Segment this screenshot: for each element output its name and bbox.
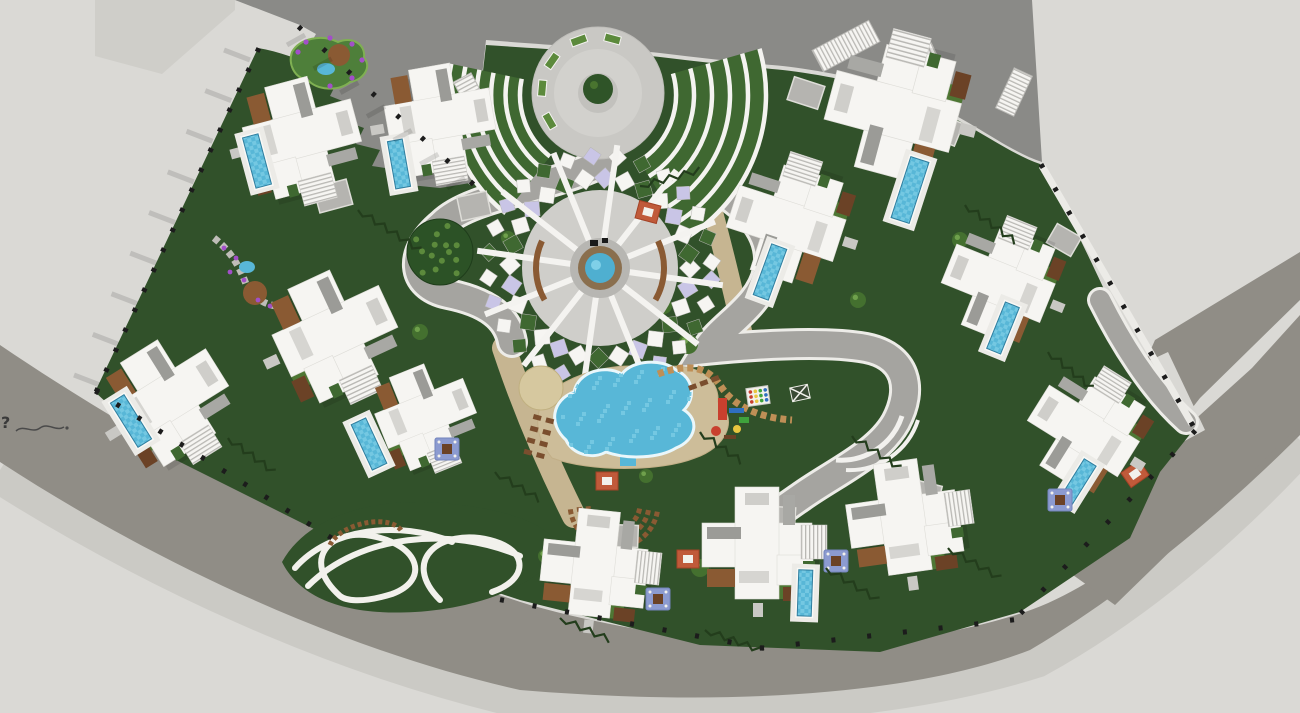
planter — [951, 527, 964, 539]
flower-bed — [349, 75, 354, 80]
cabana — [596, 472, 618, 490]
plaza-tree — [583, 74, 613, 104]
shade-structure — [590, 240, 598, 246]
play-equipment — [729, 408, 744, 413]
plaza-planter — [538, 80, 547, 97]
flower-bed — [359, 57, 364, 62]
fence-post — [1010, 617, 1015, 622]
flower-bed — [349, 41, 354, 46]
flower-bed — [228, 270, 233, 275]
play-equipment — [733, 425, 741, 433]
paving-tile — [537, 164, 552, 179]
paving-tile — [497, 318, 512, 333]
shrub — [850, 292, 866, 308]
fence-post — [867, 633, 872, 638]
mulch-bed — [328, 44, 350, 66]
paving-tile — [512, 339, 526, 353]
planter — [421, 164, 432, 177]
paving-tile — [647, 331, 664, 348]
villa-pergola — [801, 525, 827, 559]
master-plan-render — [0, 0, 1300, 713]
game-mat — [790, 384, 811, 401]
swimming-pool — [790, 564, 820, 623]
round-patio — [519, 366, 563, 410]
paving-tile — [539, 187, 556, 204]
pool-water — [797, 570, 813, 616]
roof-panel — [707, 527, 741, 539]
play-equipment — [718, 398, 727, 420]
mulch-bed — [243, 281, 267, 305]
play-equipment — [711, 426, 721, 436]
large-tree — [407, 219, 473, 285]
villa-pergola — [944, 489, 974, 526]
villa-wing — [924, 521, 964, 556]
cabana — [677, 550, 699, 568]
flower-bed — [295, 49, 300, 54]
shrub — [412, 324, 428, 340]
stray-question-mark-annotation: ? — [1, 413, 10, 432]
flower-bed — [242, 278, 247, 283]
shade-structure — [602, 238, 608, 243]
paving-tile — [676, 186, 690, 200]
flower-bed — [303, 39, 308, 44]
game-mat — [746, 386, 770, 407]
garden-pond — [239, 261, 255, 273]
flower-bed — [256, 298, 261, 303]
roof-panel — [745, 493, 769, 505]
play-equipment — [739, 417, 749, 423]
stray-dot — [65, 426, 68, 429]
fence-post — [903, 629, 908, 634]
roof-panel — [783, 495, 795, 525]
villa-pergola — [634, 550, 662, 585]
play-equipment — [724, 435, 736, 439]
entry-path — [753, 603, 763, 617]
jacuzzi — [435, 438, 459, 460]
flower-bed — [234, 256, 239, 261]
entry-path — [907, 576, 919, 591]
fence-post — [938, 625, 943, 630]
paving-tile — [517, 179, 531, 193]
jacuzzi — [1048, 489, 1072, 511]
fence-post — [831, 637, 836, 642]
fence-post — [974, 621, 979, 626]
paving-tile — [665, 208, 682, 225]
flower-bed — [327, 35, 332, 40]
roof-panel — [587, 515, 611, 529]
jacuzzi — [646, 588, 670, 610]
fence-post — [795, 641, 800, 646]
roof-panel — [739, 571, 769, 583]
paving-tile — [520, 314, 537, 331]
planter — [635, 585, 647, 596]
wood-deck — [707, 569, 735, 587]
wood-deck — [613, 607, 635, 622]
lagoon-pool-area — [519, 362, 728, 468]
flower-bed — [327, 83, 332, 88]
fence-post — [760, 645, 765, 650]
wood-deck — [543, 583, 571, 603]
paving-tile — [672, 340, 686, 354]
driveway — [457, 191, 491, 221]
paving-tile — [690, 206, 705, 221]
entry-plaza — [532, 27, 664, 159]
site-plan-viewport[interactable]: ? — [0, 0, 1300, 713]
shrub — [639, 469, 653, 483]
flower-bed — [222, 246, 227, 251]
